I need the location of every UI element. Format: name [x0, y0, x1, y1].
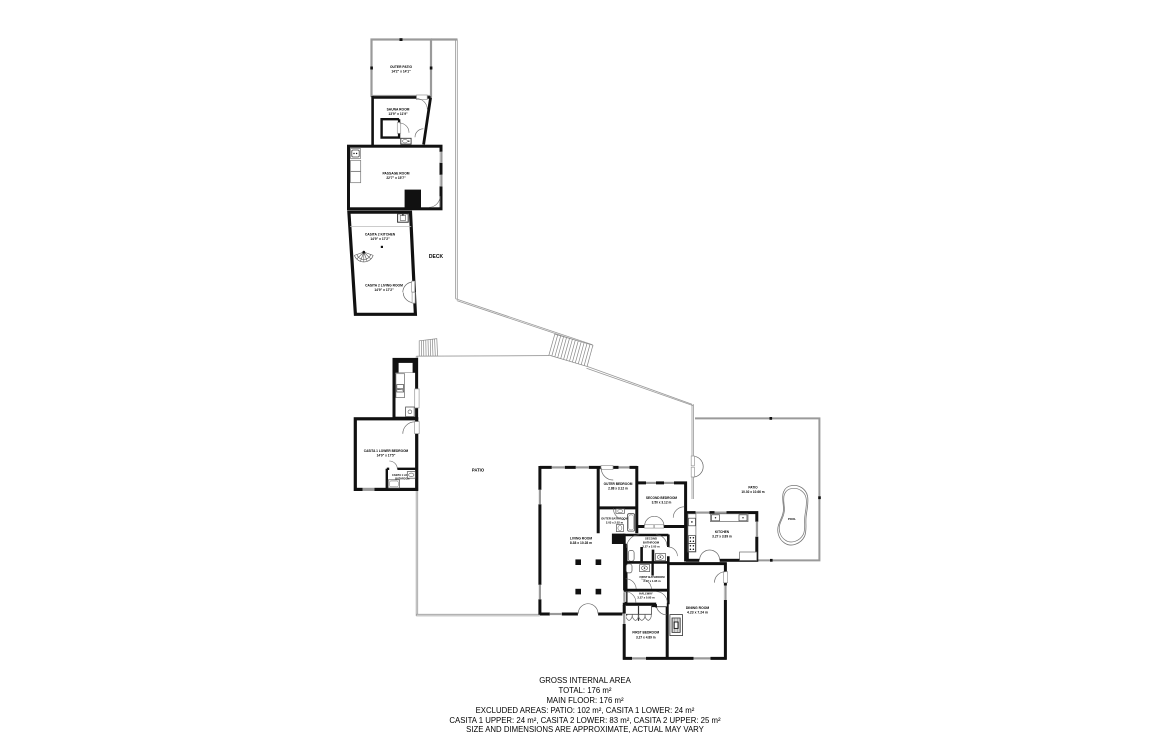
svg-text:CASITA 1 LOWER BEDROOM: CASITA 1 LOWER BEDROOM [364, 449, 409, 453]
svg-text:22'7" x 15'7": 22'7" x 15'7" [386, 176, 406, 180]
svg-text:4.23 x 7.24 m: 4.23 x 7.24 m [687, 611, 708, 615]
svg-text:CASITA 2 LIVING ROOM: CASITA 2 LIVING ROOM [365, 284, 403, 288]
svg-text:SECOND BEDROOM: SECOND BEDROOM [646, 496, 678, 500]
svg-text:OUTER PATIO: OUTER PATIO [390, 65, 412, 69]
svg-text:PASSAGE ROOM: PASSAGE ROOM [382, 172, 409, 176]
svg-text:CASITA 2 KITCHEN: CASITA 2 KITCHEN [365, 232, 396, 236]
svg-text:3.27 x 2.05 m: 3.27 x 2.05 m [642, 544, 660, 548]
svg-text:PATIO: PATIO [472, 467, 485, 472]
svg-text:CASITA 1 UPPER: 24 m², CASITA: CASITA 1 UPPER: 24 m², CASITA 2 LOWER: 8… [449, 716, 721, 725]
svg-text:14'2" x 14'1": 14'2" x 14'1" [391, 70, 411, 74]
svg-text:POOL: POOL [788, 517, 796, 521]
svg-text:SAUNA ROOM: SAUNA ROOM [387, 108, 410, 112]
svg-text:14'9" x 17'5": 14'9" x 17'5" [377, 454, 396, 458]
svg-text:3.27 x 3.89 m: 3.27 x 3.89 m [712, 535, 732, 539]
svg-text:14'9" x 17'2": 14'9" x 17'2" [374, 288, 394, 292]
svg-text:2.27 x 1.95 m: 2.27 x 1.95 m [643, 579, 661, 583]
svg-text:LIVING ROOM: LIVING ROOM [570, 536, 592, 540]
svg-text:EXCLUDED AREAS: PATIO: 102 m²,: EXCLUDED AREAS: PATIO: 102 m², CASITA 1 … [476, 706, 695, 715]
svg-text:TOTAL: 176 m²: TOTAL: 176 m² [558, 686, 611, 695]
svg-text:FIRST BEDROOM: FIRST BEDROOM [632, 631, 659, 635]
svg-text:3.27 x 4.89 m: 3.27 x 4.89 m [636, 635, 656, 639]
svg-text:SIZE AND DIMENSIONS ARE APPROX: SIZE AND DIMENSIONS ARE APPROXIMATE, ACT… [466, 725, 705, 734]
svg-text:OUTER BEDROOM: OUTER BEDROOM [604, 482, 633, 486]
svg-text:KITCHEN: KITCHEN [715, 530, 730, 534]
svg-text:3.50 x 3.12 m: 3.50 x 3.12 m [652, 501, 672, 505]
svg-text:10.02 x 10.66 m: 10.02 x 10.66 m [741, 490, 764, 494]
svg-text:8.38 x 10.28 m: 8.38 x 10.28 m [570, 541, 592, 545]
svg-text:13'9" x 11'9": 13'9" x 11'9" [388, 112, 408, 116]
svg-text:MAIN FLOOR: 176 m²: MAIN FLOOR: 176 m² [546, 696, 624, 705]
svg-text:DECK: DECK [429, 254, 444, 260]
svg-text:14'9" x 17'2": 14'9" x 17'2" [370, 237, 390, 241]
svg-text:BBQ: BBQ [397, 387, 403, 391]
svg-text:DINING ROOM: DINING ROOM [686, 606, 710, 610]
svg-text:2.03 x 2.02 m: 2.03 x 2.02 m [606, 521, 624, 525]
svg-text:2.88 x 3.12 m: 2.88 x 3.12 m [608, 487, 628, 491]
svg-text:GROSS INTERNAL AREA: GROSS INTERNAL AREA [539, 676, 631, 685]
svg-text:3.27 x 0.95 m: 3.27 x 0.95 m [637, 596, 655, 600]
svg-text:PATIO: PATIO [748, 485, 758, 489]
